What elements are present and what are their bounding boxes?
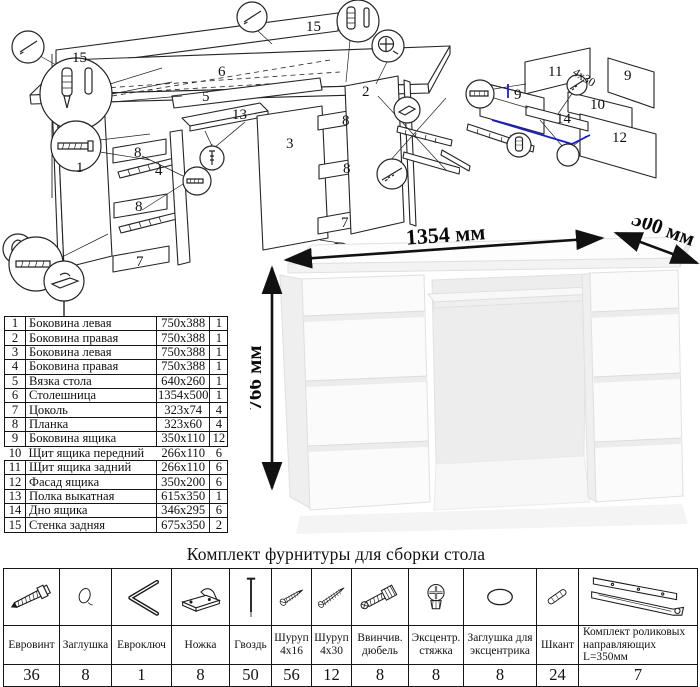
part-number-label: 5 bbox=[202, 89, 210, 105]
floor-shadow bbox=[296, 504, 688, 534]
part-qty: 1 bbox=[210, 317, 228, 331]
right-pedestal bbox=[582, 270, 683, 502]
hardware-item-qty: 50 bbox=[230, 664, 272, 686]
part-number-label: 11 bbox=[548, 64, 562, 80]
hardware-item-qty: 8 bbox=[60, 664, 112, 686]
hardware-item-qty: 36 bbox=[4, 664, 60, 686]
hardware-item-qty: 8 bbox=[172, 664, 230, 686]
hardware-item-name: Гвоздь bbox=[230, 626, 272, 665]
hardware-item-name: Комплект роликовых направляющих L=350мм bbox=[579, 626, 698, 665]
part-number-label: 10 bbox=[590, 97, 605, 113]
hardware-item-name: Заглушка для эксцентрика bbox=[464, 626, 537, 665]
parts-row: 4Боковина правая750x3881 bbox=[5, 360, 228, 374]
part-number: 9 bbox=[5, 432, 26, 446]
part-number: 12 bbox=[5, 475, 26, 489]
parts-row: 9Боковина ящика350x11012 bbox=[5, 432, 228, 446]
part-name: Столешница bbox=[26, 388, 157, 402]
part-name: Вязка стола bbox=[26, 374, 157, 388]
part-name: Боковина правая bbox=[26, 360, 157, 374]
part-number-label: 8 bbox=[135, 199, 143, 215]
part-number: 1 bbox=[5, 317, 26, 331]
part-qty: 1 bbox=[210, 360, 228, 374]
part-qty: 1 bbox=[210, 345, 228, 359]
part-number: 6 bbox=[5, 388, 26, 402]
part-number-label: 9 bbox=[514, 87, 522, 103]
part-number: 7 bbox=[5, 403, 26, 417]
part-number: 15 bbox=[5, 518, 26, 532]
parts-row: 3Боковина левая750x3881 bbox=[5, 345, 228, 359]
part-number: 10 bbox=[5, 446, 26, 460]
height-dimension-label: 766 мм bbox=[250, 345, 266, 410]
parts-row: 14Дно ящика346x2956 bbox=[5, 504, 228, 518]
part-size: 750x388 bbox=[157, 331, 210, 345]
part-number-label: 8 bbox=[343, 161, 351, 177]
part-number: 14 bbox=[5, 504, 26, 518]
part-number-label: 3 bbox=[286, 136, 294, 152]
part-name: Планка bbox=[26, 417, 157, 431]
parts-row: 15Стенка задняя675x3502 bbox=[5, 518, 228, 532]
part-qty: 1 bbox=[210, 374, 228, 388]
part-number: 5 bbox=[5, 374, 26, 388]
part-number: 3 bbox=[5, 345, 26, 359]
part-qty: 1 bbox=[210, 489, 228, 503]
hardware-item-qty: 1 bbox=[112, 664, 172, 686]
hardware-item-name: Ножка bbox=[172, 626, 230, 665]
screw-callout bbox=[200, 146, 224, 170]
hardware-item-qty: 7 bbox=[579, 664, 698, 686]
part-size: 350x200 bbox=[157, 475, 210, 489]
parts-table: 1Боковина левая750x38812Боковина правая7… bbox=[4, 316, 228, 533]
part-qty: 4 bbox=[210, 417, 228, 431]
hardware-kit-title: Комплект фурнитуры для сборки стола bbox=[0, 544, 672, 565]
hardware-item-name: Заглушка bbox=[60, 626, 112, 665]
part-name: Стенка задняя bbox=[26, 518, 157, 532]
parts-row: 7Цоколь323x744 bbox=[5, 403, 228, 417]
hardware-item-qty: 8 bbox=[409, 664, 464, 686]
part-qty: 4 bbox=[210, 403, 228, 417]
part-size: 350x110 bbox=[157, 432, 210, 446]
part-size: 346x295 bbox=[157, 504, 210, 518]
hardware-item-name: Шуруп 4x30 bbox=[312, 626, 352, 665]
cam-lock-callout bbox=[372, 30, 404, 62]
part-number-label: 15 bbox=[306, 19, 321, 35]
nail-icon bbox=[230, 569, 272, 626]
hardware-item-qty: 56 bbox=[272, 664, 312, 686]
dowel-and-shkant-callout bbox=[40, 58, 112, 130]
part-size: 1354x500 bbox=[157, 388, 210, 402]
part-size: 750x388 bbox=[157, 345, 210, 359]
drawer-facade bbox=[580, 114, 656, 178]
hex-key-icon bbox=[112, 569, 172, 626]
euro-screw-icon bbox=[4, 569, 60, 626]
part-qty: 1 bbox=[210, 331, 228, 345]
hardware-table: ЕвровинтЗаглушкаЕвроключНожкаГвоздьШуруп… bbox=[3, 568, 698, 687]
part-number: 8 bbox=[5, 417, 26, 431]
hardware-item-qty: 8 bbox=[352, 664, 409, 686]
part-size: 640x260 bbox=[157, 374, 210, 388]
part-size: 323x60 bbox=[157, 417, 210, 431]
part-name: Дно ящика bbox=[26, 504, 157, 518]
part-qty: 12 bbox=[210, 432, 228, 446]
rail-end-callout bbox=[394, 97, 420, 123]
part-number-label: 15 bbox=[72, 50, 87, 66]
part-size: 323x74 bbox=[157, 403, 210, 417]
part-number-label: 6 bbox=[218, 64, 226, 80]
desk-interior bbox=[432, 274, 590, 510]
nail-callout bbox=[237, 2, 267, 32]
part-size: 266x110 bbox=[157, 446, 210, 460]
wood-dowel-icon bbox=[537, 569, 579, 626]
part-size: 750x388 bbox=[157, 317, 210, 331]
hardware-row: ЕвровинтЗаглушкаЕвроключНожкаГвоздьШуруп… bbox=[4, 626, 698, 665]
screw-callout bbox=[377, 159, 407, 189]
hardware-item-name: Евровинт bbox=[4, 626, 60, 665]
part-name: Боковина левая bbox=[26, 317, 157, 331]
part-size: 675x350 bbox=[157, 518, 210, 532]
part-number: 2 bbox=[5, 331, 26, 345]
hardware-item-name: Эксцентр. стяжка bbox=[409, 626, 464, 665]
assembly-instruction-sheet: { "main_diagram": { "labels": [ {"t":"15… bbox=[0, 0, 700, 677]
part-number-label: 1 bbox=[76, 160, 84, 176]
part-qty: 2 bbox=[210, 518, 228, 532]
part-number-label: 12 bbox=[612, 130, 627, 146]
part-number-label: 8 bbox=[342, 113, 350, 129]
part-size: 615x350 bbox=[157, 489, 210, 503]
parts-row: 2Боковина правая750x3881 bbox=[5, 331, 228, 345]
part-size: 266x110 bbox=[157, 460, 210, 474]
empty-callout bbox=[557, 144, 579, 166]
part-name: Боковина ящика bbox=[26, 432, 157, 446]
dowel-callout bbox=[507, 133, 531, 157]
screw-long-icon bbox=[312, 569, 352, 626]
hardware-item-name: Шуруп 4x16 bbox=[272, 626, 312, 665]
left-pedestal bbox=[280, 275, 430, 510]
part-qty: 6 bbox=[210, 460, 228, 474]
part-number-label: 13 bbox=[232, 107, 247, 123]
part-qty: 1 bbox=[210, 388, 228, 402]
part-name: Фасад ящика bbox=[26, 475, 157, 489]
euro-screw-callout bbox=[466, 80, 494, 108]
drawer-exploded-diagram: 11991012144x30 bbox=[440, 28, 700, 223]
parts-row: 8Планка323x604 bbox=[5, 417, 228, 431]
dowel-icon bbox=[352, 569, 409, 626]
part-number-label: 8 bbox=[134, 145, 142, 161]
cam-lock-icon bbox=[409, 569, 464, 626]
part-number: 13 bbox=[5, 489, 26, 503]
part-qty: 6 bbox=[210, 446, 228, 460]
part-name: Цоколь bbox=[26, 403, 157, 417]
hardware-item-name: Шкант bbox=[537, 626, 579, 665]
dowel-and-shkant-callout bbox=[337, 0, 379, 42]
part-name: Щит ящика передний bbox=[26, 446, 157, 460]
parts-row: 6Столешница1354x5001 bbox=[5, 388, 228, 402]
hardware-item-qty: 24 bbox=[537, 664, 579, 686]
hardware-row: 36818505612888247 bbox=[4, 664, 698, 686]
part-qty: 6 bbox=[210, 475, 228, 489]
parts-row: 1Боковина левая750x3881 bbox=[5, 317, 228, 331]
part-name: Боковина правая bbox=[26, 331, 157, 345]
part-number-label: 4 bbox=[155, 163, 163, 179]
hardware-item-name: Евроключ bbox=[112, 626, 172, 665]
nail-callout bbox=[12, 31, 44, 63]
hardware-item-qty: 8 bbox=[464, 664, 537, 686]
part-number-label: 7 bbox=[136, 254, 144, 270]
part-number: 4 bbox=[5, 360, 26, 374]
part-name: Щит ящика задний bbox=[26, 460, 157, 474]
part-qty: 6 bbox=[210, 504, 228, 518]
parts-row: 13Полка выкатная615x3501 bbox=[5, 489, 228, 503]
parts-row: 10Щит ящика передний266x1106 bbox=[5, 446, 228, 460]
foot-callout bbox=[44, 261, 84, 316]
euro-screw-callout bbox=[183, 167, 211, 195]
part-number-label: 2 bbox=[362, 84, 370, 100]
part-number-label: 9 bbox=[624, 68, 632, 84]
parts-row: 11Щит ящика задний266x1106 bbox=[5, 460, 228, 474]
parts-row: 5Вязка стола640x2601 bbox=[5, 374, 228, 388]
foot-icon bbox=[172, 569, 230, 626]
part-number-label: 14 bbox=[556, 111, 572, 127]
cam-cap-icon bbox=[464, 569, 537, 626]
cap-icon bbox=[60, 569, 112, 626]
desk-photo: 1354 мм 500 мм 766 мм bbox=[250, 218, 700, 540]
rail-set-icon bbox=[579, 569, 698, 626]
parts-row: 12Фасад ящика350x2006 bbox=[5, 475, 228, 489]
screw-small-icon bbox=[272, 569, 312, 626]
part-name: Боковина левая bbox=[26, 345, 157, 359]
part-size: 750x388 bbox=[157, 360, 210, 374]
part-name: Полка выкатная bbox=[26, 489, 157, 503]
hardware-row bbox=[4, 569, 698, 626]
part-number: 11 bbox=[5, 460, 26, 474]
hardware-item-qty: 12 bbox=[312, 664, 352, 686]
hardware-item-name: Ввинчив. дюбель bbox=[352, 626, 409, 665]
